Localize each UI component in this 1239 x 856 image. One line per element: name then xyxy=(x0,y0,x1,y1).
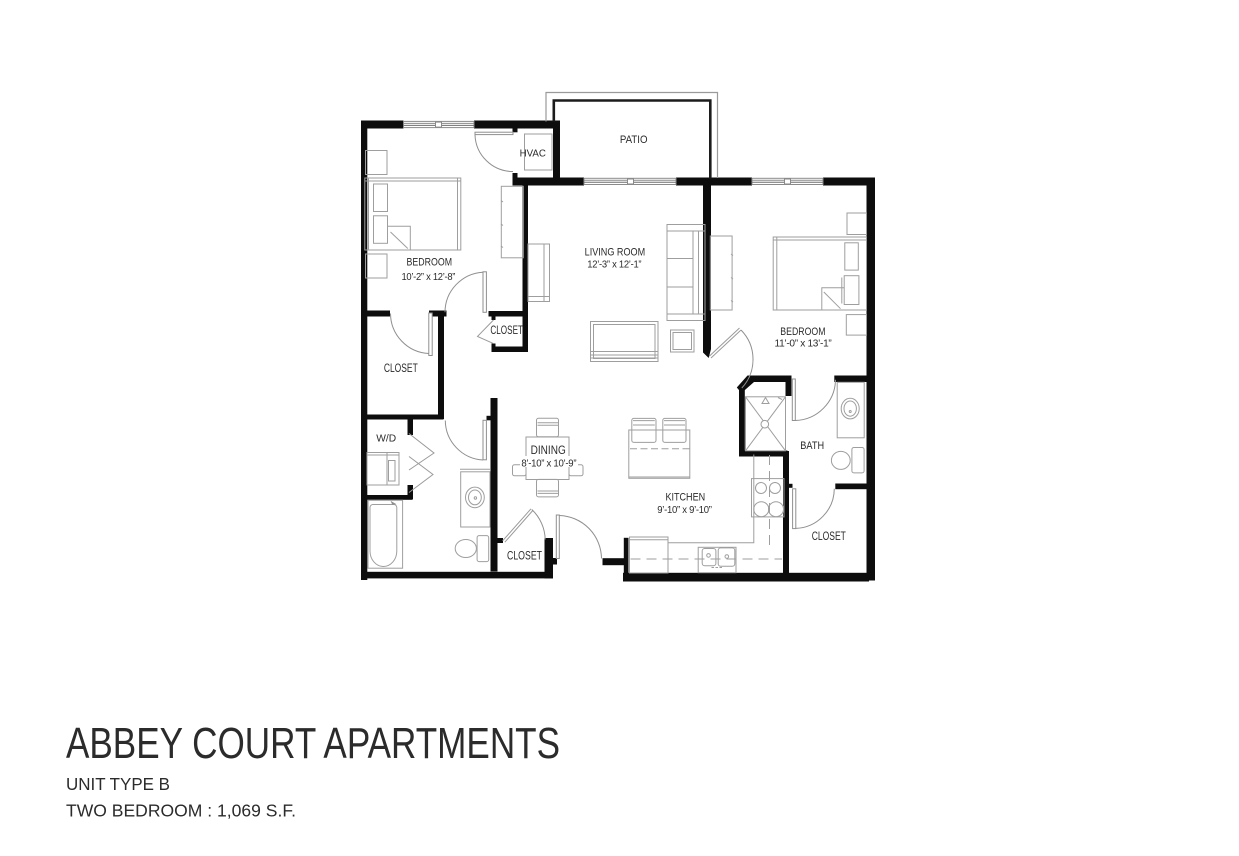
svg-text:10’-2” x 12’-8”: 10’-2” x 12’-8” xyxy=(401,272,455,283)
svg-text:CLOSET: CLOSET xyxy=(384,363,418,375)
svg-text:BEDROOM: BEDROOM xyxy=(780,326,825,338)
svg-text:12’-3” x 12’-1”: 12’-3” x 12’-1” xyxy=(587,259,641,270)
svg-text:8’-10” x 10’-9”: 8’-10” x 10’-9” xyxy=(521,459,576,470)
svg-text:HVAC: HVAC xyxy=(520,147,547,159)
svg-text:BEDROOM: BEDROOM xyxy=(407,257,453,269)
svg-text:9’-10” x 9’-10”: 9’-10” x 9’-10” xyxy=(657,505,711,516)
svg-text:11’-0” x 13’-1”: 11’-0” x 13’-1” xyxy=(775,339,832,350)
svg-text:PATIO: PATIO xyxy=(620,134,648,146)
svg-text:W/D: W/D xyxy=(376,432,396,444)
svg-text:ABBEY COURT APARTMENTS: ABBEY COURT APARTMENTS xyxy=(66,719,560,768)
svg-text:KITCHEN: KITCHEN xyxy=(665,492,705,504)
svg-text:CLOSET: CLOSET xyxy=(507,551,542,563)
svg-text:UNIT TYPE B: UNIT TYPE B xyxy=(66,774,170,794)
svg-text:BATH: BATH xyxy=(800,440,824,452)
svg-text:TWO BEDROOM : 1,069 S.F.: TWO BEDROOM : 1,069 S.F. xyxy=(66,801,296,821)
svg-text:LIVING ROOM: LIVING ROOM xyxy=(585,246,646,258)
svg-text:CLOSET: CLOSET xyxy=(812,531,846,543)
svg-text:DINING: DINING xyxy=(531,445,566,457)
svg-text:CLOSET: CLOSET xyxy=(490,325,523,337)
